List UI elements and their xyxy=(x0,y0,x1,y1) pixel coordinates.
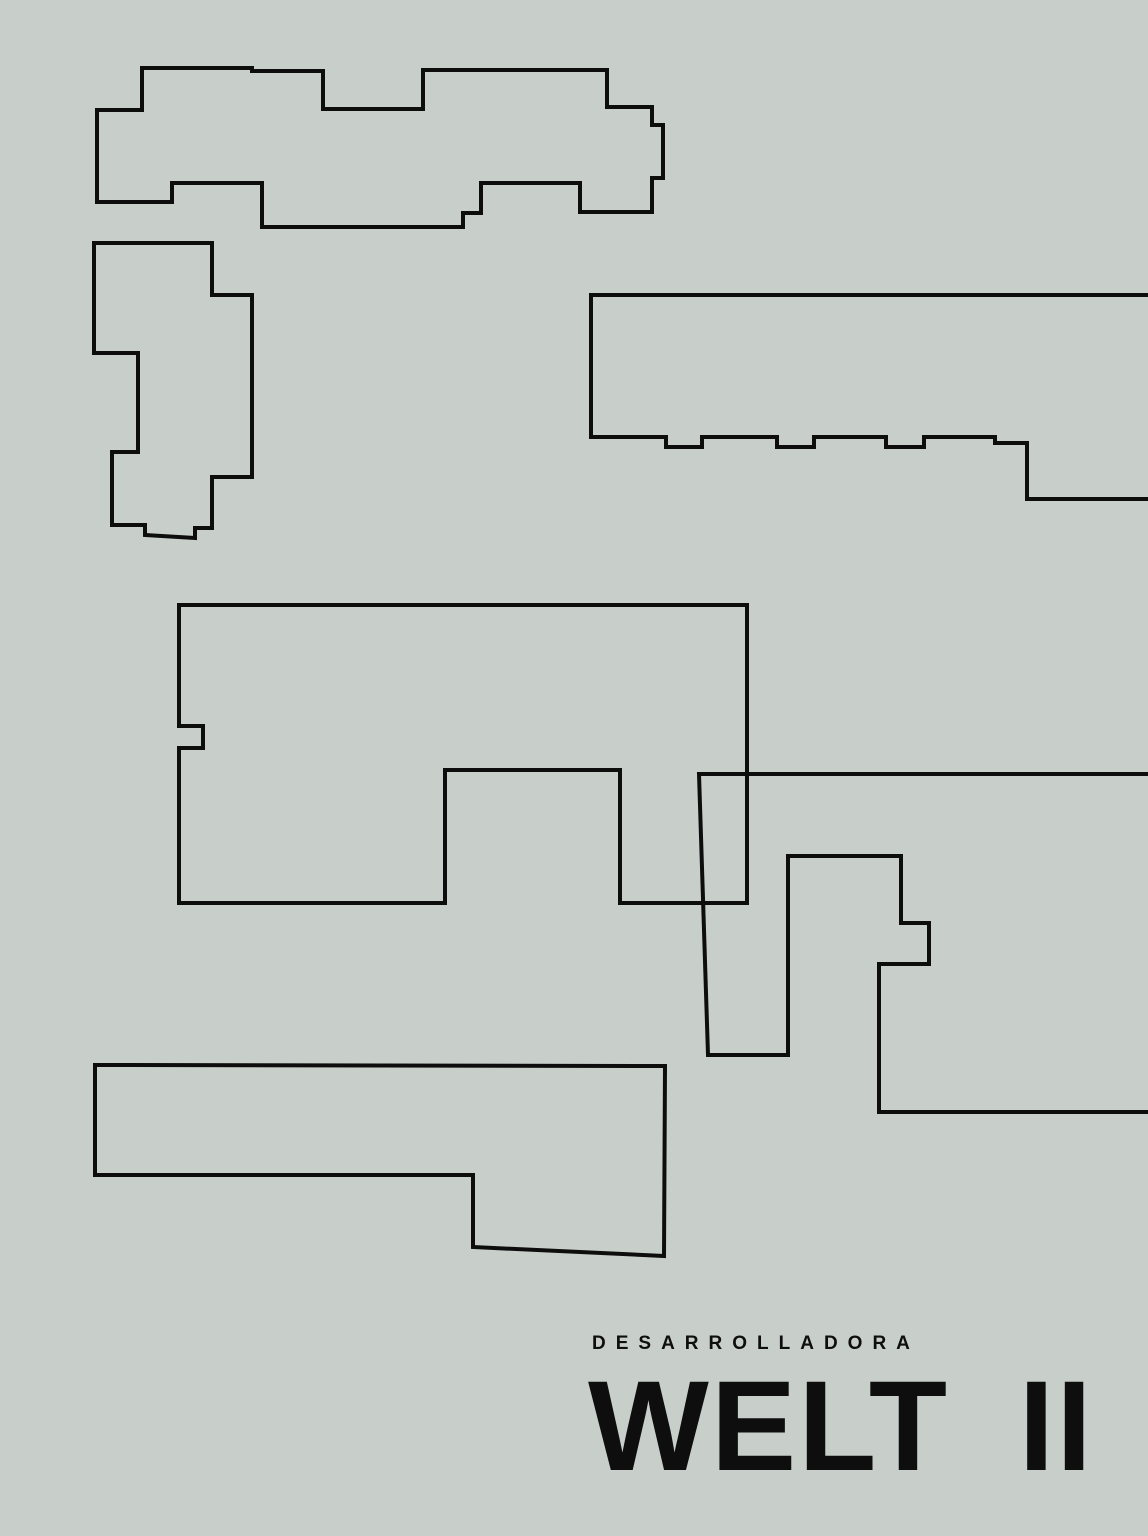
poster-canvas: DESARROLLADORA WELT II xyxy=(0,0,1148,1536)
poster-title: WELT II xyxy=(588,1355,1094,1498)
brand-eyebrow-label: DESARROLLADORA xyxy=(592,1333,920,1354)
